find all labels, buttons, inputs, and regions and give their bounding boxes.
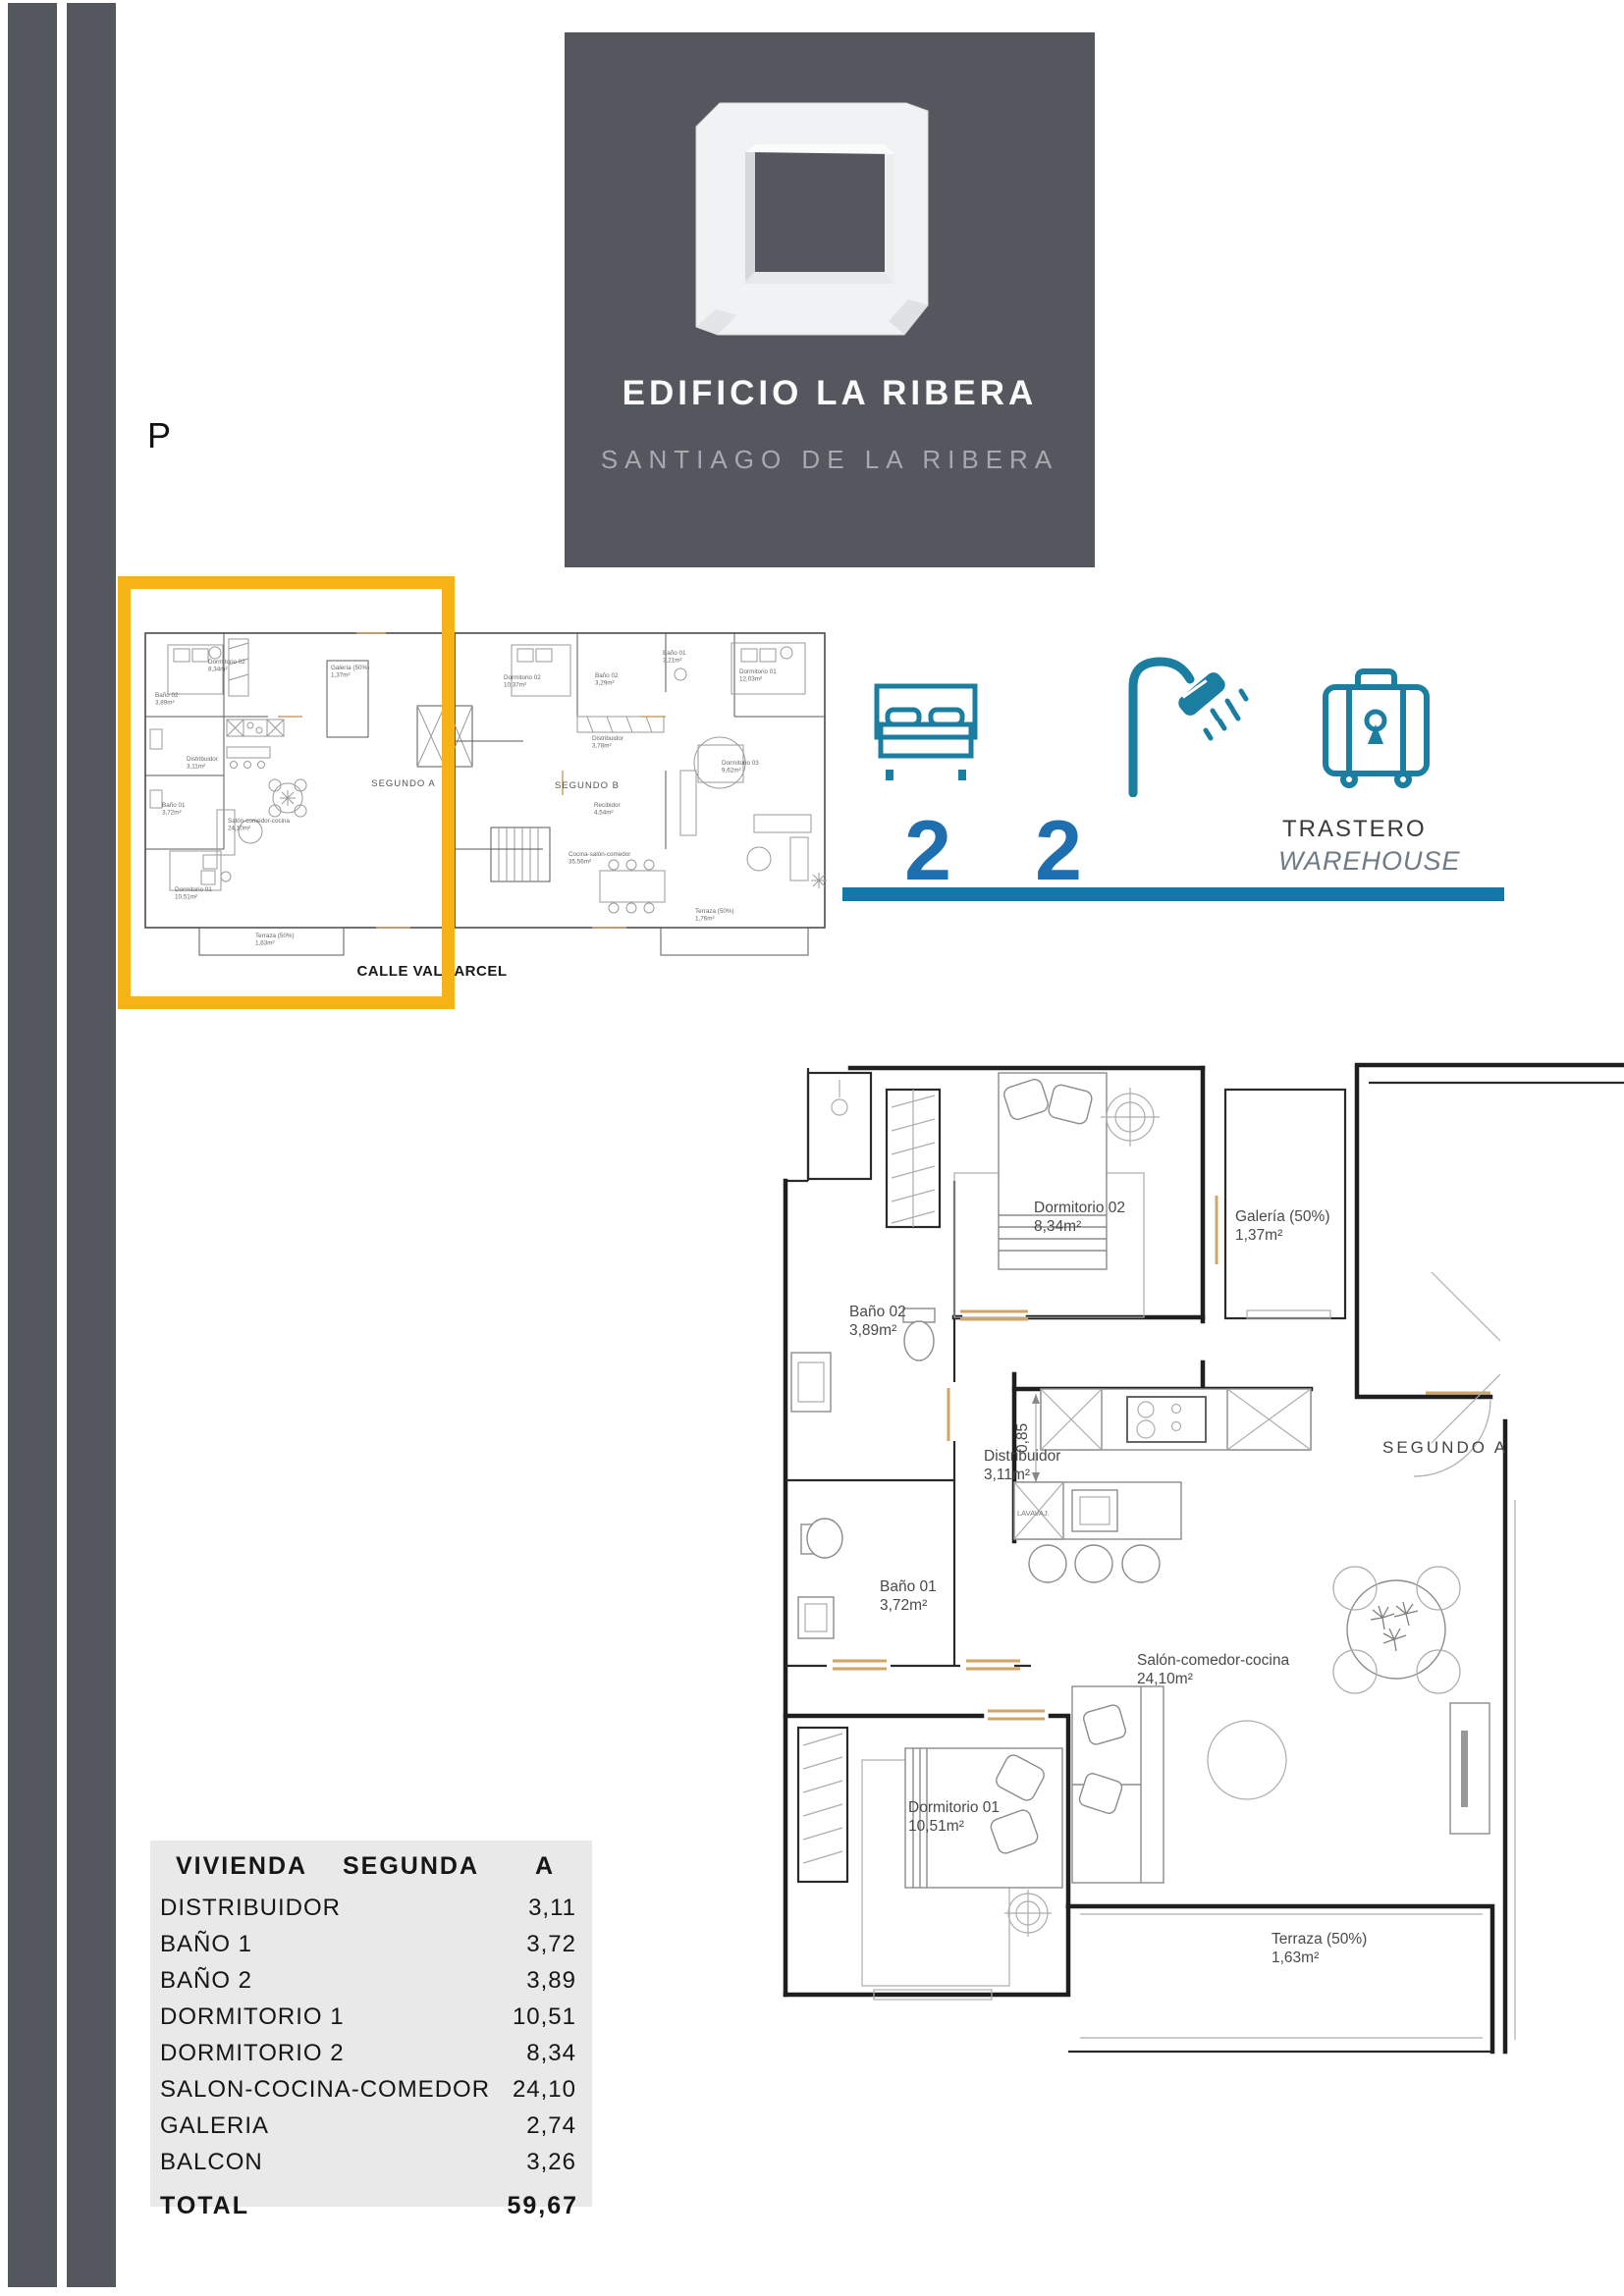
total-value: 59,67 bbox=[507, 2192, 578, 2220]
brand-cube-logo bbox=[694, 101, 930, 337]
ov-room-label: Dormitorio 0112,03m² bbox=[739, 668, 777, 683]
row-value: 3,72 bbox=[526, 1931, 576, 1958]
row-label: DISTRIBUIDOR bbox=[160, 1895, 341, 1922]
row-label: BALCON bbox=[160, 2149, 263, 2176]
detail-unit-label: SEGUNDO A bbox=[1382, 1438, 1508, 1457]
table-row: DISTRIBUIDOR3,11 bbox=[150, 1890, 592, 1926]
ov-room-label: Dormitorio 039,62m² bbox=[722, 760, 759, 774]
row-value: 3,11 bbox=[528, 1895, 576, 1922]
total-label: TOTAL bbox=[160, 2192, 249, 2220]
row-value: 3,89 bbox=[526, 1967, 576, 1995]
ov-room-label: Terraza (50%)1,76m² bbox=[695, 908, 734, 923]
table-row: BAÑO 13,72 bbox=[150, 1926, 592, 1962]
room-label: Baño 013,72m² bbox=[880, 1578, 937, 1614]
left-accent-bar-outer bbox=[8, 3, 57, 2287]
table-row: DORMITORIO 28,34 bbox=[150, 2035, 592, 2071]
row-label: SALON-COCINA-COMEDOR bbox=[160, 2076, 490, 2104]
storage-label-es: TRASTERO bbox=[1282, 816, 1427, 843]
ov-room-label: Baño 023,29m² bbox=[595, 672, 619, 687]
bathroom-count: 2 bbox=[1014, 809, 1103, 893]
row-value: 3,26 bbox=[526, 2149, 576, 2176]
brand-subtitle: SANTIAGO DE LA RIBERA bbox=[565, 445, 1095, 475]
room-label: Baño 023,89m² bbox=[849, 1304, 906, 1339]
table-total-row: TOTAL59,67 bbox=[150, 2184, 592, 2227]
table-row: SALON-COCINA-COMEDOR24,10 bbox=[150, 2071, 592, 2108]
table-header-col2: SEGUNDA bbox=[343, 1852, 479, 1881]
row-label: DORMITORIO 2 bbox=[160, 2040, 345, 2067]
features-underline bbox=[842, 887, 1504, 901]
page-letter: P bbox=[147, 415, 171, 456]
table-header-col1: VIVIENDA bbox=[176, 1852, 307, 1881]
shower-icon bbox=[1119, 650, 1252, 797]
detail-floorplan: 0,85 LAVAVAJ. bbox=[756, 1029, 1624, 2059]
table-row: DORMITORIO 110,51 bbox=[150, 1999, 592, 2035]
row-label: BAÑO 2 bbox=[160, 1967, 252, 1995]
ov-room-label: Dormitorio 0210,37m² bbox=[504, 674, 541, 689]
row-value: 10,51 bbox=[513, 2003, 576, 2031]
table-row: BALCON3,26 bbox=[150, 2144, 592, 2180]
table-row: GALERIA2,74 bbox=[150, 2108, 592, 2144]
brand-title: EDIFICIO LA RIBERA bbox=[565, 374, 1095, 413]
ov-room-label: Baño 013,21m² bbox=[663, 650, 686, 665]
plan-appliance-label: LAVAVAJ. bbox=[1017, 1509, 1050, 1518]
table-header-col3: A bbox=[535, 1852, 555, 1881]
brand-panel: EDIFICIO LA RIBERA SANTIAGO DE LA RIBERA bbox=[565, 32, 1095, 567]
ov-unit-b-label: SEGUNDO B bbox=[555, 780, 620, 791]
room-label: Distribuidor3,11m² bbox=[984, 1448, 1060, 1483]
storage-label-en: WAREHOUSE bbox=[1278, 846, 1461, 877]
unit-highlight-box bbox=[118, 576, 455, 1009]
room-label: Terraza (50%)1,63m² bbox=[1272, 1931, 1367, 1966]
ov-room-label: Distribuidor3,78m² bbox=[592, 735, 623, 750]
row-value: 2,74 bbox=[526, 2112, 576, 2140]
warehouse-suitcase-icon bbox=[1321, 662, 1432, 789]
left-accent-bar-inner bbox=[67, 3, 116, 2287]
brochure-page: EDIFICIO LA RIBERA SANTIAGO DE LA RIBERA… bbox=[0, 0, 1624, 2296]
row-label: GALERIA bbox=[160, 2112, 269, 2140]
bedroom-count: 2 bbox=[884, 809, 972, 893]
room-label: Salón-comedor-cocina24,10m² bbox=[1137, 1652, 1289, 1687]
row-value: 8,34 bbox=[526, 2040, 576, 2067]
ov-room-label: Cocina-salón-comedor35,56m² bbox=[568, 851, 630, 866]
ov-room-label: Recibidor4,54m² bbox=[594, 802, 621, 817]
row-value: 24,10 bbox=[513, 2076, 576, 2104]
row-label: DORMITORIO 1 bbox=[160, 2003, 345, 2031]
table-row: BAÑO 23,89 bbox=[150, 1962, 592, 1999]
row-label: BAÑO 1 bbox=[160, 1931, 252, 1958]
bed-icon bbox=[872, 682, 980, 788]
room-label: Galería (50%)1,37m² bbox=[1235, 1208, 1329, 1244]
table-header: VIVIENDA SEGUNDA A bbox=[150, 1846, 592, 1890]
area-summary-table: VIVIENDA SEGUNDA A DISTRIBUIDOR3,11 BAÑO… bbox=[150, 1841, 592, 2207]
